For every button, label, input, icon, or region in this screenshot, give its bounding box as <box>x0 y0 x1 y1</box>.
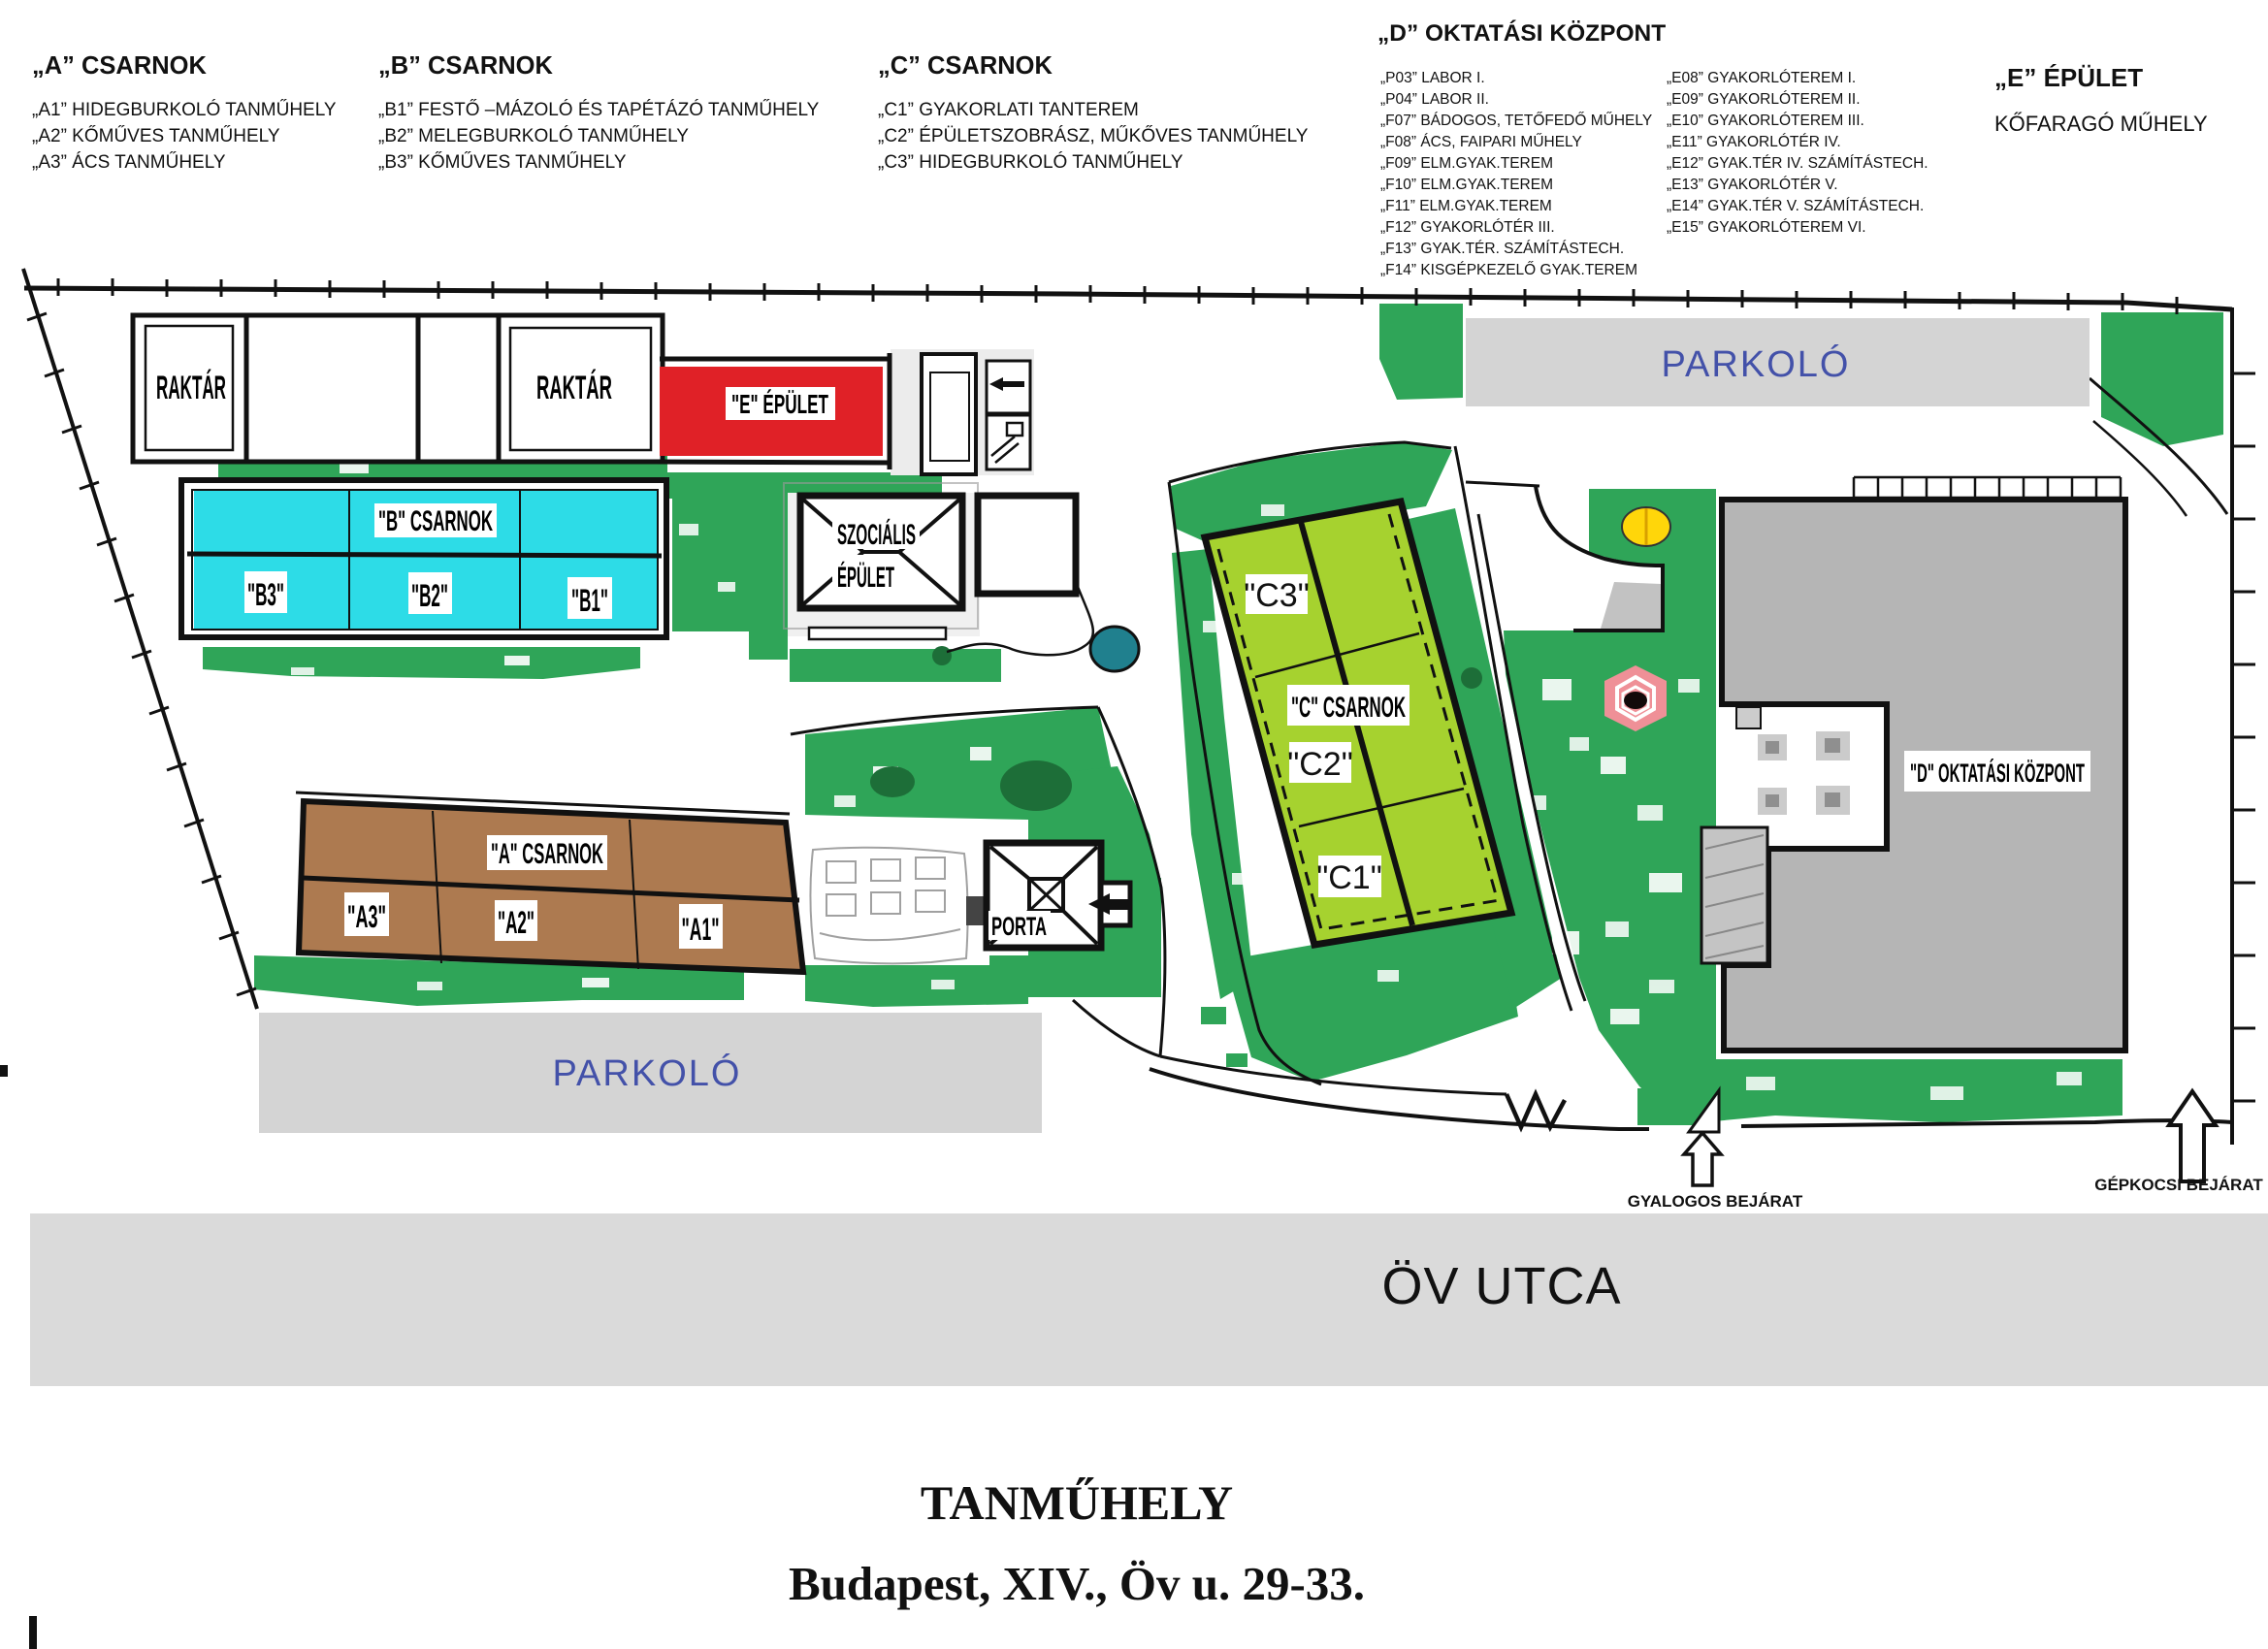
svg-text:„E13” GYAKORLÓTÉR V.: „E13” GYAKORLÓTÉR V. <box>1667 177 1838 193</box>
svg-text:„P04” LABOR II.: „P04” LABOR II. <box>1380 91 1489 108</box>
svg-text:„D” OKTATÁSI KÖZPONT: „D” OKTATÁSI KÖZPONT <box>1377 19 1666 47</box>
svg-text:„F07” BÁDOGOS, TETŐFEDŐ MŰHELY: „F07” BÁDOGOS, TETŐFEDŐ MŰHELY <box>1380 113 1652 129</box>
svg-text:„P03” LABOR I.: „P03” LABOR I. <box>1380 70 1485 86</box>
svg-text:"C1": "C1" <box>1316 859 1382 896</box>
svg-text:"C3": "C3" <box>1244 577 1310 614</box>
svg-text:"D" OKTATÁSI KÖZPONT: "D" OKTATÁSI KÖZPONT <box>1910 758 2085 788</box>
svg-text:„F10” ELM.GYAK.TEREM: „F10” ELM.GYAK.TEREM <box>1380 177 1553 193</box>
svg-text:KŐFARAGÓ MŰHELY: KŐFARAGÓ MŰHELY <box>1994 112 2208 136</box>
svg-text:„C2” ÉPÜLETSZOBRÁSZ, MŰKŐVES T: „C2” ÉPÜLETSZOBRÁSZ, MŰKŐVES TANMŰHELY <box>878 125 1309 146</box>
svg-text:„C3” HIDEGBURKOLÓ TANMŰHELY: „C3” HIDEGBURKOLÓ TANMŰHELY <box>878 151 1183 173</box>
svg-text:„E11” GYAKORLÓTÉR IV.: „E11” GYAKORLÓTÉR IV. <box>1667 134 1841 150</box>
svg-text:„B2” MELEGBURKOLÓ TANMŰHELY: „B2” MELEGBURKOLÓ TANMŰHELY <box>378 125 689 146</box>
svg-text:GYALOGOS BEJÁRAT: GYALOGOS BEJÁRAT <box>1628 1192 1803 1211</box>
svg-text:„A2” KŐMŰVES TANMŰHELY: „A2” KŐMŰVES TANMŰHELY <box>32 125 280 146</box>
svg-text:„A3” ÁCS TANMŰHELY: „A3” ÁCS TANMŰHELY <box>32 151 226 173</box>
svg-text:"A1": "A1" <box>682 912 720 947</box>
svg-text:"B" CSARNOK: "B" CSARNOK <box>378 505 493 537</box>
svg-text:"C" CSARNOK: "C" CSARNOK <box>1291 692 1406 724</box>
svg-text:„E12” GYAK.TÉR IV. SZÁMÍTÁSTEC: „E12” GYAK.TÉR IV. SZÁMÍTÁSTECH. <box>1667 155 1928 172</box>
svg-text:PARKOLÓ: PARKOLÓ <box>1662 343 1851 385</box>
svg-text:„F09” ELM.GYAK.TEREM: „F09” ELM.GYAK.TEREM <box>1380 155 1553 172</box>
svg-text:„F12” GYAKORLÓTÉR III.: „F12” GYAKORLÓTÉR III. <box>1380 219 1555 236</box>
svg-text:„F13” GYAK.TÉR. SZÁMÍTÁSTECH.: „F13” GYAK.TÉR. SZÁMÍTÁSTECH. <box>1380 241 1624 257</box>
svg-text:"A3": "A3" <box>347 899 386 934</box>
svg-text:"B2": "B2" <box>411 578 448 613</box>
svg-text:"B1": "B1" <box>571 583 608 618</box>
svg-text:ÖV UTCA: ÖV UTCA <box>1381 1257 1621 1315</box>
svg-text:"E" ÉPÜLET: "E" ÉPÜLET <box>731 389 828 419</box>
svg-text:SZOCIÁLIS: SZOCIÁLIS <box>837 518 916 551</box>
svg-text:„F08” ÁCS, FAIPARI MŰHELY: „F08” ÁCS, FAIPARI MŰHELY <box>1380 134 1582 150</box>
svg-text:„F11” ELM.GYAK.TEREM: „F11” ELM.GYAK.TEREM <box>1380 198 1552 214</box>
svg-text:„E08” GYAKORLÓTEREM I.: „E08” GYAKORLÓTEREM I. <box>1667 70 1856 86</box>
svg-text:RAKTÁR: RAKTÁR <box>156 370 226 406</box>
svg-text:„E” ÉPÜLET: „E” ÉPÜLET <box>1994 63 2143 92</box>
svg-text:„F14” KISGÉPKEZELŐ GYAK.TEREM: „F14” KISGÉPKEZELŐ GYAK.TEREM <box>1380 262 1637 278</box>
svg-text:"B3": "B3" <box>247 577 284 612</box>
svg-text:„E14” GYAK.TÉR V. SZÁMÍTÁSTECH: „E14” GYAK.TÉR V. SZÁMÍTÁSTECH. <box>1667 198 1924 214</box>
svg-text:„E10” GYAKORLÓTEREM III.: „E10” GYAKORLÓTEREM III. <box>1667 113 1864 129</box>
svg-text:„B” CSARNOK: „B” CSARNOK <box>378 52 554 80</box>
svg-text:„A1” HIDEGBURKOLÓ TANMŰHELY: „A1” HIDEGBURKOLÓ TANMŰHELY <box>32 99 337 120</box>
svg-text:„B1” FESTŐ –MÁZOLÓ ÉS TAPÉTÁZÓ: „B1” FESTŐ –MÁZOLÓ ÉS TAPÉTÁZÓ TANMŰHELY <box>378 99 820 120</box>
svg-text:ÉPÜLET: ÉPÜLET <box>837 561 894 594</box>
svg-text:"A2": "A2" <box>498 905 535 940</box>
svg-text:"C2": "C2" <box>1287 746 1353 783</box>
svg-text:PORTA: PORTA <box>991 912 1047 941</box>
svg-text:„A” CSARNOK: „A” CSARNOK <box>32 52 208 80</box>
svg-text:„C” CSARNOK: „C” CSARNOK <box>878 52 1053 80</box>
svg-text:Budapest, XIV., Öv u. 29-33.: Budapest, XIV., Öv u. 29-33. <box>789 1557 1365 1610</box>
svg-text:„E15” GYAKORLÓTEREM VI.: „E15” GYAKORLÓTEREM VI. <box>1667 219 1866 236</box>
svg-text:PARKOLÓ: PARKOLÓ <box>553 1052 742 1094</box>
svg-text:„C1” GYAKORLATI TANTEREM: „C1” GYAKORLATI TANTEREM <box>878 100 1139 120</box>
svg-text:"A" CSARNOK: "A" CSARNOK <box>491 838 603 870</box>
svg-text:GÉPKOCSI BEJÁRAT: GÉPKOCSI BEJÁRAT <box>2094 1176 2263 1194</box>
svg-text:„B3” KŐMŰVES TANMŰHELY: „B3” KŐMŰVES TANMŰHELY <box>378 151 627 173</box>
svg-text:TANMŰHELY: TANMŰHELY <box>921 1475 1233 1530</box>
svg-text:RAKTÁR: RAKTÁR <box>536 370 612 406</box>
svg-text:„E09” GYAKORLÓTEREM II.: „E09” GYAKORLÓTEREM II. <box>1667 91 1861 108</box>
